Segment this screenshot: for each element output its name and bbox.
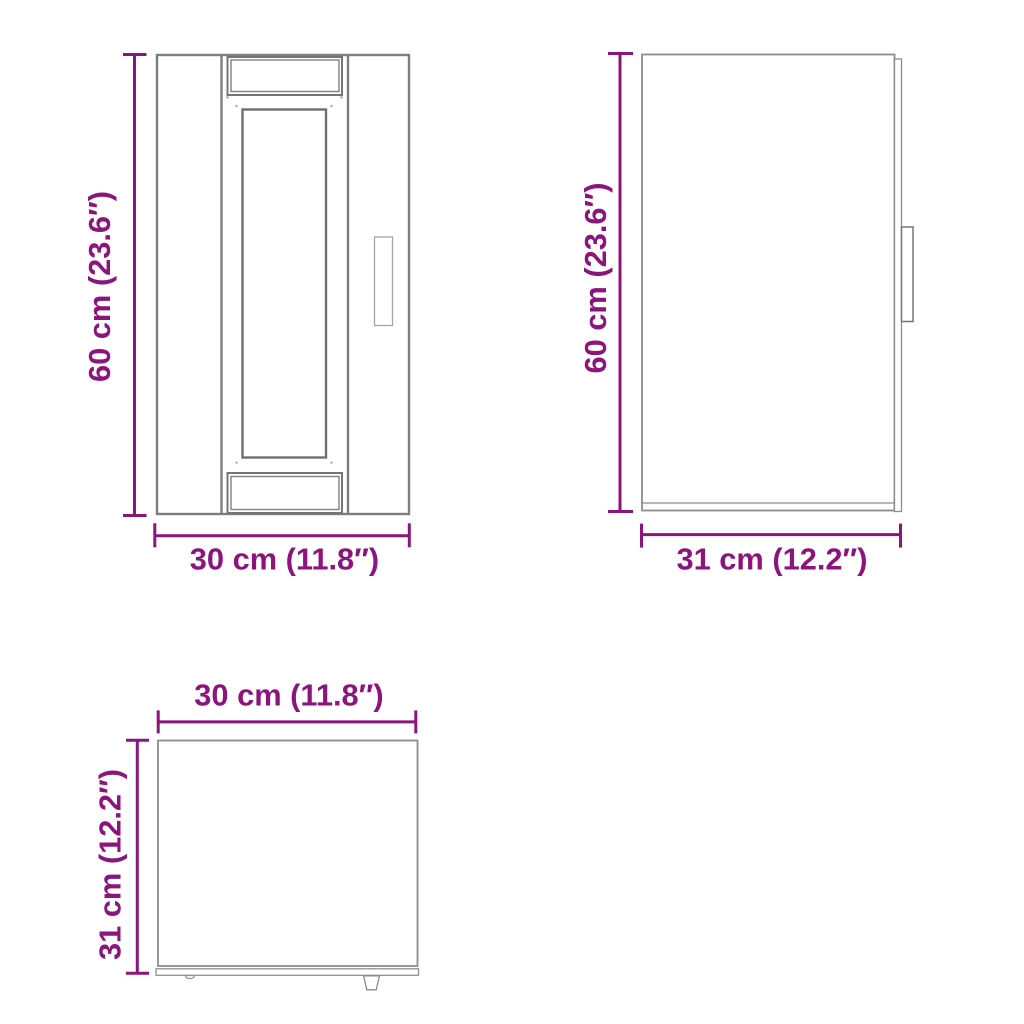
- svg-text:30 cm (11.8″): 30 cm (11.8″): [194, 678, 383, 713]
- svg-text:31 cm (12.2″): 31 cm (12.2″): [93, 769, 128, 960]
- svg-text:31 cm (12.2″): 31 cm (12.2″): [676, 542, 867, 577]
- svg-text:60 cm (23.6″): 60 cm (23.6″): [578, 182, 613, 373]
- svg-text:30 cm (11.8″): 30 cm (11.8″): [190, 542, 379, 577]
- svg-text:60 cm (23.6″): 60 cm (23.6″): [82, 191, 117, 382]
